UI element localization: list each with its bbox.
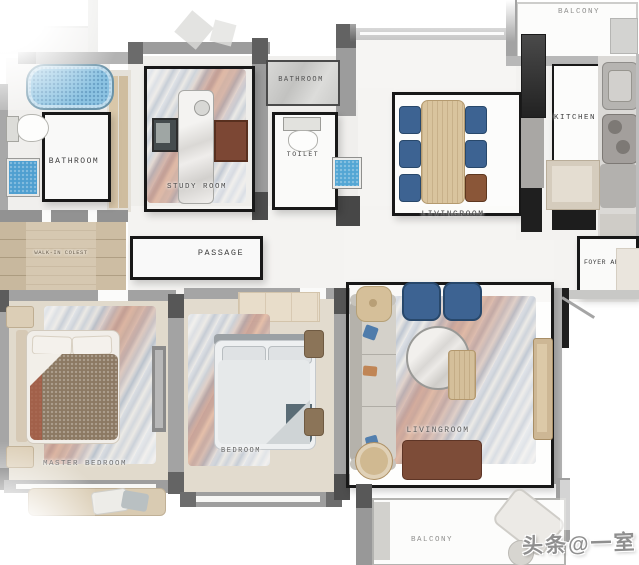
edge-fade [560,480,639,530]
wardrobe [96,220,126,294]
hall-floor [358,88,394,210]
wall-gap [42,210,51,222]
door-panel [119,76,128,208]
pillow [32,335,73,355]
toilet-label: TOILET [287,151,319,158]
passage-label: PASSAGE [198,248,244,258]
shower-icon [7,159,39,196]
stool [304,408,324,436]
tv-bench [402,440,482,480]
quilt-fold [30,354,62,386]
closet-label: WALK-IN COLEST [34,249,87,256]
sofa-cushion-line [362,406,396,407]
toilet-icon [17,114,49,142]
faded-wall [0,26,92,54]
dining-chair [399,106,421,134]
counter [600,164,637,208]
window-line [196,496,320,502]
planter [374,502,390,560]
wall-segment [18,52,36,64]
pillow [72,335,113,355]
armchair [402,282,441,321]
balcony-top-label: BALCONY [558,8,600,16]
throw-pillow [363,365,378,376]
kitchen-island-top [552,166,592,202]
wall-gap [88,210,97,222]
appliance [610,18,638,54]
counter-black [552,208,596,230]
tv-board-inner [155,350,163,428]
living-label: LIVINGROOM [406,426,469,435]
fridge [521,34,546,118]
window-line [360,32,504,35]
burner [608,120,622,134]
tv-screen-inner [156,123,170,143]
dining-table [421,100,465,204]
wall-segment [506,0,517,60]
nightstand [6,306,34,328]
toilet-icon [283,117,321,131]
cabinet [214,120,248,162]
sofa-cushion-line [362,354,396,355]
dining-chair [399,174,421,202]
nesting-table [448,350,476,400]
burner [616,140,630,154]
wall-segment [356,484,372,508]
wall-segment [180,492,196,507]
study-label: STUDY ROOM [167,183,227,191]
bedroom-label: BEDROOM [221,447,261,455]
armchair [443,282,482,321]
wall-segment [336,24,356,48]
nightstand [6,446,34,468]
dining-chair [465,106,487,134]
dining-chair [465,140,487,168]
shoe-cabinet [616,248,639,294]
bathroom-label: BATHROOM [49,157,99,166]
side-table-knob [369,299,377,307]
bathtub-icon [26,64,114,110]
wall-segment [128,42,143,64]
dining-label: LIVINGROOM [421,210,484,219]
shower-icon [333,158,361,188]
sink-basin [608,70,632,102]
wall-segment [336,196,360,226]
kitchen-label: KITCHEN [554,114,596,122]
master-label: MASTER BEDROOM [43,460,127,468]
wall-segment [168,294,184,494]
counter [521,118,544,188]
passage-outline [130,236,263,280]
desk-chair [194,100,210,116]
wall-segment [0,210,128,222]
watermark: 头条@一室 [521,526,636,560]
wall-segment [168,472,184,494]
floor-plan: WALK-IN COLEST BATHROOM STUDY ROOM BATHR… [0,0,639,565]
round-table [355,442,393,480]
balcony-bottom-label: BALCONY [411,536,453,544]
tv-cabinet-inner [537,344,547,432]
dining-chair [465,174,487,202]
toilet-icon [288,130,318,152]
bathroom2-label: BATHROOM [278,76,324,84]
counter-dark [521,188,542,232]
faded-wall [88,0,98,55]
closet-floor [26,220,96,294]
door-gap [98,290,128,301]
wardrobe [0,220,26,294]
stool [304,330,324,358]
wall-segment [569,290,639,299]
wall-segment [168,294,184,318]
dining-chair [399,140,421,168]
wall-segment [0,290,176,301]
